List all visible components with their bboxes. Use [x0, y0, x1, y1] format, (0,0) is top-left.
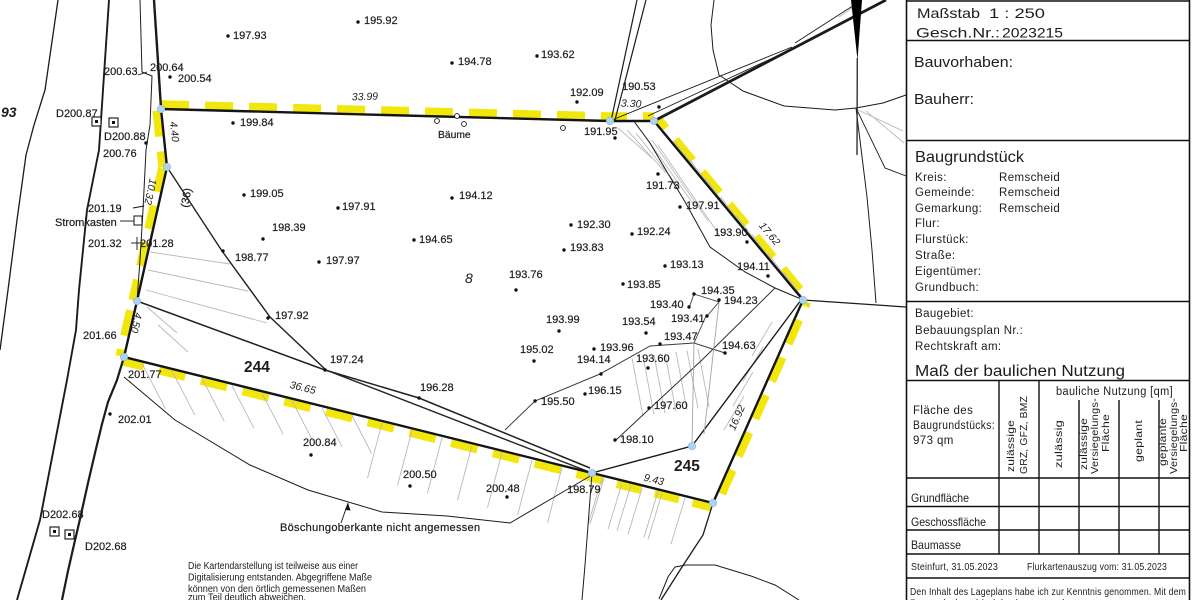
svg-text:Flurstück:: Flurstück:: [915, 234, 969, 246]
svg-text:Bäume: Bäume: [438, 130, 471, 141]
svg-text:200.48: 200.48: [486, 483, 520, 495]
svg-text:Fläche des: Fläche des: [913, 405, 973, 417]
svg-text:194.12: 194.12: [459, 190, 493, 202]
svg-text:200.54: 200.54: [178, 73, 212, 85]
svg-text:Straße:: Straße:: [915, 250, 956, 262]
svg-text:Rechtskraft am:: Rechtskraft am:: [915, 341, 1002, 353]
svg-text:201.28: 201.28: [140, 238, 174, 250]
svg-text:197.91: 197.91: [342, 201, 376, 213]
svg-text:194.11: 194.11: [737, 261, 770, 273]
svg-text:93: 93: [1, 104, 17, 120]
svg-text:33.99: 33.99: [352, 91, 379, 104]
svg-text:Baumasse: Baumasse: [911, 538, 961, 552]
svg-text:198.77: 198.77: [235, 252, 269, 264]
svg-text:201.77: 201.77: [128, 369, 162, 381]
svg-text:193.47: 193.47: [664, 331, 698, 343]
svg-text:193.76: 193.76: [509, 269, 543, 281]
svg-text:192.30: 192.30: [577, 219, 611, 231]
svg-text:Steinfurt, 31.05.2023: Steinfurt, 31.05.2023: [911, 562, 998, 573]
svg-text:194.78: 194.78: [458, 56, 492, 68]
svg-text:198.39: 198.39: [272, 222, 306, 234]
svg-text:197.92: 197.92: [275, 310, 309, 322]
svg-text:zulässige: zulässige: [1006, 420, 1017, 472]
svg-text:8: 8: [465, 270, 473, 286]
svg-text:Baugrundstücks:: Baugrundstücks:: [913, 420, 995, 432]
svg-text:Gesch.Nr.:: Gesch.Nr.:: [916, 25, 1000, 41]
svg-text:973 qm: 973 qm: [913, 435, 954, 447]
svg-text:193.96: 193.96: [600, 342, 634, 354]
svg-text:Remscheid: Remscheid: [999, 203, 1060, 215]
svg-text:200.50: 200.50: [403, 469, 437, 481]
svg-text:200.63: 200.63: [104, 66, 138, 78]
svg-text:D200.87: D200.87: [56, 108, 98, 120]
svg-text:Geschossfläche: Geschossfläche: [911, 515, 986, 529]
svg-text:Die Kartendarstellung ist teil: Die Kartendarstellung ist teilweise aus …: [188, 561, 359, 572]
svg-text:Fläche: Fläche: [1179, 414, 1190, 452]
svg-text:Digitalisierung entstanden. Ab: Digitalisierung entstanden. Abgegriffene…: [188, 573, 372, 584]
svg-text:193.99: 193.99: [546, 314, 580, 326]
svg-text:3.30: 3.30: [621, 97, 642, 110]
svg-text:4.40: 4.40: [167, 121, 181, 143]
svg-text:200.64: 200.64: [150, 62, 184, 74]
svg-text:193.40: 193.40: [650, 299, 684, 311]
svg-text:zum Teil deutlich abweichen.: zum Teil deutlich abweichen.: [188, 593, 306, 601]
svg-text:D200.88: D200.88: [104, 131, 146, 143]
svg-text:197.91: 197.91: [686, 200, 720, 212]
svg-text:Versiegelungs-: Versiegelungs-: [1090, 398, 1101, 474]
svg-text:Bauvorhaben:: Bauvorhaben:: [914, 55, 1013, 71]
svg-text:193.54: 193.54: [622, 316, 656, 328]
svg-text:bauliche Nutzung [qm]: bauliche Nutzung [qm]: [1056, 386, 1173, 398]
svg-text:197.93: 197.93: [233, 30, 267, 42]
svg-text:196.15: 196.15: [588, 385, 622, 397]
svg-text:200.76: 200.76: [103, 148, 137, 160]
svg-text:Böschungoberkante nicht angeme: Böschungoberkante nicht angemessen: [280, 522, 480, 534]
svg-text:198.10: 198.10: [620, 434, 654, 446]
svg-text:zulässige: zulässige: [1079, 418, 1090, 470]
svg-text:201.32: 201.32: [88, 238, 122, 250]
svg-text:199.05: 199.05: [250, 188, 284, 200]
svg-text:geplante: geplante: [1158, 418, 1169, 466]
svg-text:197.24: 197.24: [330, 354, 364, 366]
svg-text:193.62: 193.62: [541, 49, 575, 61]
svg-text:198.79: 198.79: [567, 484, 601, 496]
svg-text:Eigentümer:: Eigentümer:: [915, 266, 981, 278]
svg-text:191.95: 191.95: [584, 126, 618, 138]
svg-text:201.19: 201.19: [88, 203, 122, 215]
svg-text:200.84: 200.84: [303, 437, 337, 449]
svg-text:1 : 250: 1 : 250: [989, 5, 1045, 21]
svg-text:zulässig: zulässig: [1054, 420, 1065, 468]
svg-text:193.83: 193.83: [570, 242, 604, 254]
svg-text:197.60: 197.60: [654, 400, 688, 412]
svg-text:196.28: 196.28: [420, 382, 454, 394]
svg-text:D202.68: D202.68: [85, 541, 127, 553]
svg-text:Remscheid: Remscheid: [999, 172, 1060, 184]
svg-text:192.09: 192.09: [570, 87, 604, 99]
svg-text:GRZ, GFZ, BMZ: GRZ, GFZ, BMZ: [1019, 396, 1030, 474]
svg-text:190.53: 190.53: [622, 81, 656, 93]
svg-text:193.41: 193.41: [671, 313, 705, 325]
svg-text:Baugrundstück: Baugrundstück: [915, 149, 1025, 166]
svg-text:Gemeinde:: Gemeinde:: [915, 187, 975, 199]
svg-text:193.85: 193.85: [627, 279, 661, 291]
svg-text:2023215: 2023215: [1002, 25, 1063, 41]
svg-text:geplant: geplant: [1134, 420, 1145, 462]
svg-text:Den Inhalt des Lageplans h: Den Inhalt des Lageplans habe ich zur Ke…: [910, 587, 1186, 598]
svg-text:Gemarkung:: Gemarkung:: [915, 203, 982, 215]
svg-text:195.50: 195.50: [541, 396, 575, 408]
svg-text:197.97: 197.97: [326, 255, 360, 267]
svg-text:Grundfläche: Grundfläche: [911, 491, 969, 505]
svg-text:Baugebiet:: Baugebiet:: [915, 308, 974, 320]
svg-text:Maß der baulichen Nutzung: Maß der baulichen Nutzung: [915, 363, 1125, 380]
svg-text:Bauherr:: Bauherr:: [914, 92, 974, 108]
svg-text:199.84: 199.84: [240, 117, 274, 129]
svg-text:193.13: 193.13: [670, 259, 704, 271]
svg-text:Flur:: Flur:: [915, 218, 940, 230]
svg-text:193.90: 193.90: [714, 227, 748, 239]
svg-text:Remscheid: Remscheid: [999, 187, 1060, 199]
svg-text:245: 245: [674, 458, 700, 475]
svg-text:Kreis:: Kreis:: [915, 172, 947, 184]
svg-text:201.66: 201.66: [83, 330, 117, 342]
svg-text:194.14: 194.14: [577, 354, 611, 366]
svg-text:Maßstab: Maßstab: [917, 5, 980, 21]
svg-text:202.01: 202.01: [118, 414, 152, 426]
svg-text:244: 244: [244, 359, 270, 376]
svg-text:Stromkasten: Stromkasten: [55, 217, 117, 229]
svg-text:195.92: 195.92: [364, 15, 398, 27]
svg-text:D202.68: D202.68: [42, 509, 84, 521]
svg-text:Flurkartenauszug vom: 31.05.: Flurkartenauszug vom: 31.05.2023: [1027, 562, 1167, 573]
svg-text:192.24: 192.24: [637, 226, 671, 238]
svg-text:194.63: 194.63: [722, 340, 756, 352]
svg-text:Grundbuch:: Grundbuch:: [915, 282, 979, 294]
svg-text:Bebauungsplan Nr.:: Bebauungsplan Nr.:: [915, 325, 1023, 337]
svg-text:194.65: 194.65: [419, 234, 453, 246]
svg-text:191.73: 191.73: [646, 180, 680, 192]
svg-text:193.60: 193.60: [636, 353, 670, 365]
svg-text:Fläche: Fläche: [1101, 414, 1112, 452]
svg-text:195.02: 195.02: [520, 344, 554, 356]
svg-text:194.23: 194.23: [724, 295, 758, 307]
